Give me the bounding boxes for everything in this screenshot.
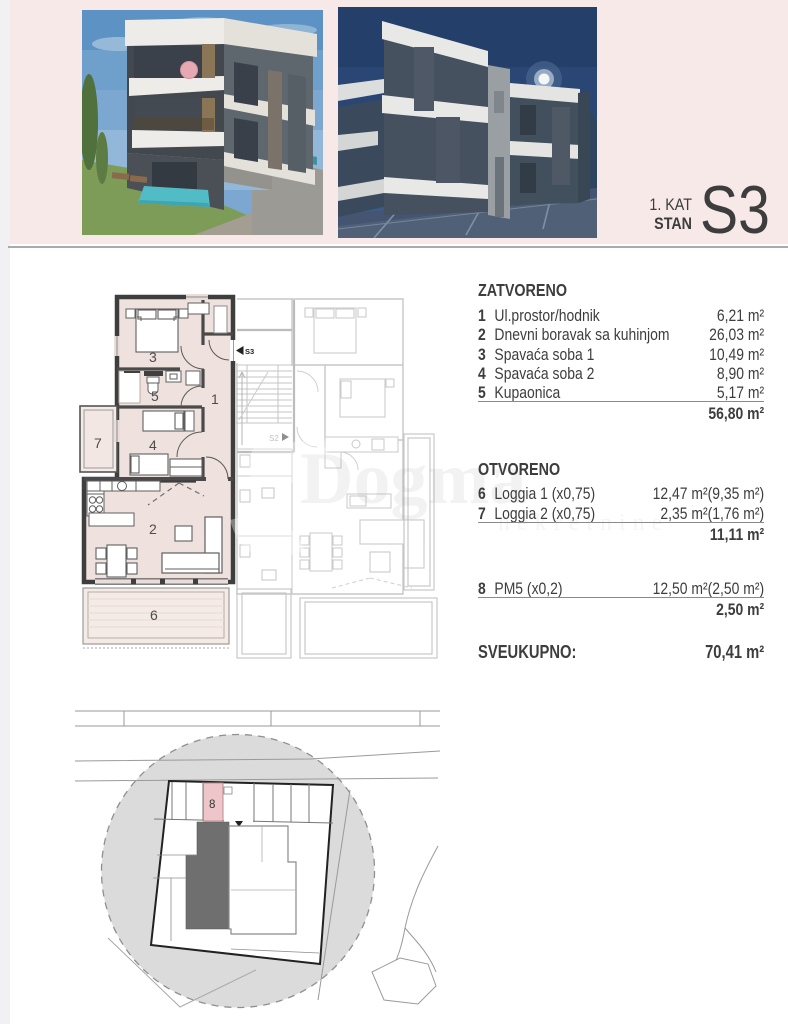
svg-text:7: 7	[94, 435, 102, 451]
svg-text:4: 4	[149, 437, 157, 453]
svg-text:3: 3	[149, 349, 157, 365]
svg-text:S3: S3	[245, 347, 254, 356]
svg-text:2: 2	[149, 521, 157, 537]
svg-text:6: 6	[150, 607, 158, 623]
svg-text:8: 8	[209, 799, 215, 811]
svg-text:5: 5	[151, 388, 159, 404]
svg-text:1: 1	[211, 391, 219, 407]
